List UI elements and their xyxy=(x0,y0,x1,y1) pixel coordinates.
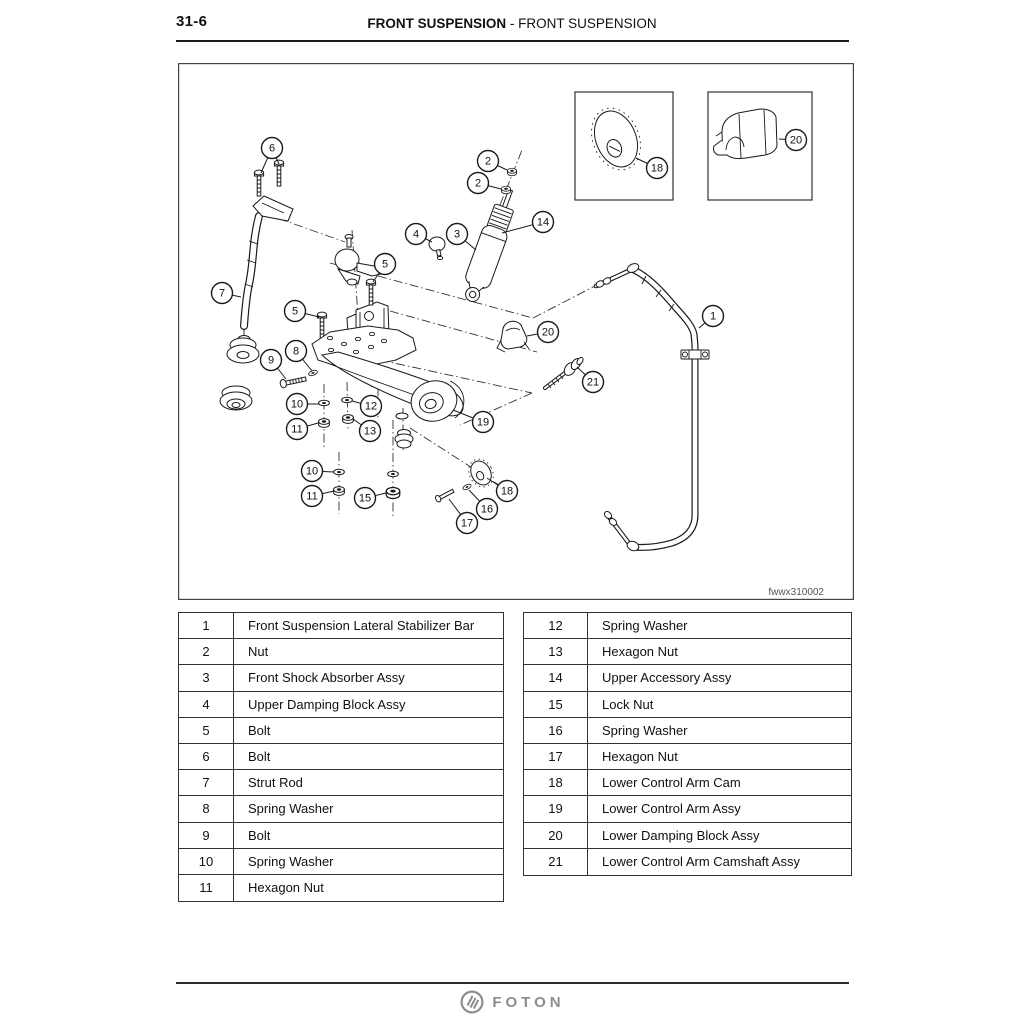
part-number: 11 xyxy=(179,875,234,901)
end-link-bottom xyxy=(603,510,640,552)
washer-10a xyxy=(319,400,330,405)
callout-number: 11 xyxy=(291,424,302,436)
part-name: Nut xyxy=(234,639,503,664)
table-row: 5Bolt xyxy=(179,718,503,744)
washer-16b xyxy=(388,471,399,476)
table-row: 1Front Suspension Lateral Stabilizer Bar xyxy=(179,613,503,639)
upper-damping-block xyxy=(429,237,445,260)
table-row: 13Hexagon Nut xyxy=(524,639,851,665)
exploded-view-diagram: 6224314575892012110121113191011151816171… xyxy=(178,63,854,600)
part-name: Lower Damping Block Assy xyxy=(588,823,851,848)
strut-bushing xyxy=(220,386,252,410)
callout-number: 16 xyxy=(481,504,493,516)
table-row: 9Bolt xyxy=(179,823,503,849)
callout-number: 11 xyxy=(306,491,317,503)
foton-logo-icon xyxy=(459,989,485,1015)
bump-stop xyxy=(395,430,413,449)
callout-number: 8 xyxy=(293,346,299,358)
part-name: Bolt xyxy=(234,823,503,848)
part-name: Spring Washer xyxy=(234,849,503,874)
parts-table-right: 12Spring Washer13Hexagon Nut14Upper Acce… xyxy=(523,612,852,876)
washer-16a xyxy=(462,483,472,491)
part-number: 9 xyxy=(179,823,234,848)
brand-wordmark: FOTON xyxy=(492,994,564,1011)
part-name: Lower Control Arm Camshaft Assy xyxy=(588,849,851,875)
bolt-9 xyxy=(279,375,306,389)
part-name: Spring Washer xyxy=(588,718,851,743)
manual-page: { "header": { "page_number": "31-6", "ti… xyxy=(0,0,1024,1024)
callout-number: 20 xyxy=(542,327,554,339)
nut-11a xyxy=(319,419,330,428)
bolt-5-right xyxy=(366,279,375,305)
table-row: 3Front Shock Absorber Assy xyxy=(179,665,503,691)
part-name: Hexagon Nut xyxy=(588,744,851,769)
callout-number: 2 xyxy=(475,178,481,190)
bolt-17 xyxy=(434,488,454,503)
table-row: 11Hexagon Nut xyxy=(179,875,503,901)
part-number: 16 xyxy=(524,718,588,743)
part-name: Hexagon Nut xyxy=(234,875,503,901)
subsection-title: - FRONT SUSPENSION xyxy=(510,16,657,31)
table-row: 19Lower Control Arm Assy xyxy=(524,796,851,822)
table-row: 10Spring Washer xyxy=(179,849,503,875)
washer-12 xyxy=(342,397,353,402)
part-name: Bolt xyxy=(234,718,503,743)
callout-number: 9 xyxy=(268,355,274,367)
table-row: 7Strut Rod xyxy=(179,770,503,796)
part-name: Spring Washer xyxy=(588,613,851,638)
bolt-5-left xyxy=(317,312,326,338)
part-number: 4 xyxy=(179,692,234,717)
table-row: 15Lock Nut xyxy=(524,692,851,718)
callout-number: 1 xyxy=(710,311,716,323)
table-row: 6Bolt xyxy=(179,744,503,770)
table-row: 14Upper Accessory Assy xyxy=(524,665,851,691)
part-name: Front Suspension Lateral Stabilizer Bar xyxy=(234,613,503,638)
ball-joint xyxy=(335,235,381,286)
part-name: Upper Damping Block Assy xyxy=(234,692,503,717)
page-title: FRONT SUSPENSION - FRONT SUSPENSION xyxy=(0,16,1024,31)
shock-nut-upper xyxy=(507,168,516,175)
inset-cam xyxy=(575,92,673,200)
callout-number: 2 xyxy=(485,156,491,168)
callout-number: 6 xyxy=(269,143,275,155)
part-number: 8 xyxy=(179,796,234,821)
part-name: Lower Control Arm Assy xyxy=(588,796,851,821)
part-number: 20 xyxy=(524,823,588,848)
part-name: Lower Control Arm Cam xyxy=(588,770,851,795)
section-title: FRONT SUSPENSION xyxy=(367,16,506,31)
header-rule xyxy=(176,40,849,42)
part-name: Spring Washer xyxy=(234,796,503,821)
bolt-6a xyxy=(254,170,263,196)
table-row: 21Lower Control Arm Camshaft Assy xyxy=(524,849,851,875)
callout-number: 21 xyxy=(587,377,599,389)
callout-number: 7 xyxy=(219,288,225,300)
parts-table-left: 1Front Suspension Lateral Stabilizer Bar… xyxy=(178,612,504,902)
table-row: 17Hexagon Nut xyxy=(524,744,851,770)
shock-nut-lower xyxy=(501,186,510,193)
lock-nut-15 xyxy=(386,488,400,499)
washer-10b xyxy=(334,469,345,474)
table-row: 16Spring Washer xyxy=(524,718,851,744)
callout-number: 15 xyxy=(359,493,371,505)
part-number: 2 xyxy=(179,639,234,664)
part-name: Hexagon Nut xyxy=(588,639,851,664)
part-number: 19 xyxy=(524,796,588,821)
part-number: 5 xyxy=(179,718,234,743)
end-link-top xyxy=(595,262,640,289)
lower-control-arm xyxy=(312,326,464,448)
callout-number: 4 xyxy=(413,229,419,241)
part-number: 12 xyxy=(524,613,588,638)
table-row: 20Lower Damping Block Assy xyxy=(524,823,851,849)
callout-number: 18 xyxy=(651,163,663,175)
callout-number: 10 xyxy=(291,399,303,411)
callout-number: 13 xyxy=(364,426,376,438)
nut-13 xyxy=(343,415,354,424)
part-number: 15 xyxy=(524,692,588,717)
part-number: 7 xyxy=(179,770,234,795)
bar-clamp xyxy=(681,350,709,359)
callout-number: 5 xyxy=(382,259,388,271)
part-number: 21 xyxy=(524,849,588,875)
washer-8 xyxy=(308,369,318,376)
part-number: 10 xyxy=(179,849,234,874)
part-name: Front Shock Absorber Assy xyxy=(234,665,503,690)
table-row: 12Spring Washer xyxy=(524,613,851,639)
part-number: 1 xyxy=(179,613,234,638)
callout-number: 10 xyxy=(306,466,318,478)
callout-number: 12 xyxy=(365,401,377,413)
figure-code: fwwx310002 xyxy=(768,587,824,598)
camshaft-bolt-21 xyxy=(545,356,584,388)
part-number: 3 xyxy=(179,665,234,690)
part-number: 14 xyxy=(524,665,588,690)
callout-number: 19 xyxy=(477,417,489,429)
table-row: 4Upper Damping Block Assy xyxy=(179,692,503,718)
part-number: 17 xyxy=(524,744,588,769)
nut-11b xyxy=(334,487,345,496)
table-row: 2Nut xyxy=(179,639,503,665)
lower-damping-block xyxy=(497,321,529,352)
part-name: Strut Rod xyxy=(234,770,503,795)
stabilizer-bar xyxy=(595,262,709,552)
callout-number: 3 xyxy=(454,229,460,241)
part-number: 13 xyxy=(524,639,588,664)
footer-rule xyxy=(176,982,849,984)
footer-logo: FOTON xyxy=(0,989,1024,1015)
callout-number: 18 xyxy=(501,486,513,498)
callout-number: 14 xyxy=(537,217,549,229)
part-name: Lock Nut xyxy=(588,692,851,717)
part-number: 6 xyxy=(179,744,234,769)
callout-number: 17 xyxy=(461,518,473,530)
table-row: 8Spring Washer xyxy=(179,796,503,822)
table-row: 18Lower Control Arm Cam xyxy=(524,770,851,796)
callout-number: 20 xyxy=(790,135,802,147)
strut-rod xyxy=(220,196,293,410)
part-number: 18 xyxy=(524,770,588,795)
callout-number: 5 xyxy=(292,306,298,318)
part-name: Upper Accessory Assy xyxy=(588,665,851,690)
part-name: Bolt xyxy=(234,744,503,769)
